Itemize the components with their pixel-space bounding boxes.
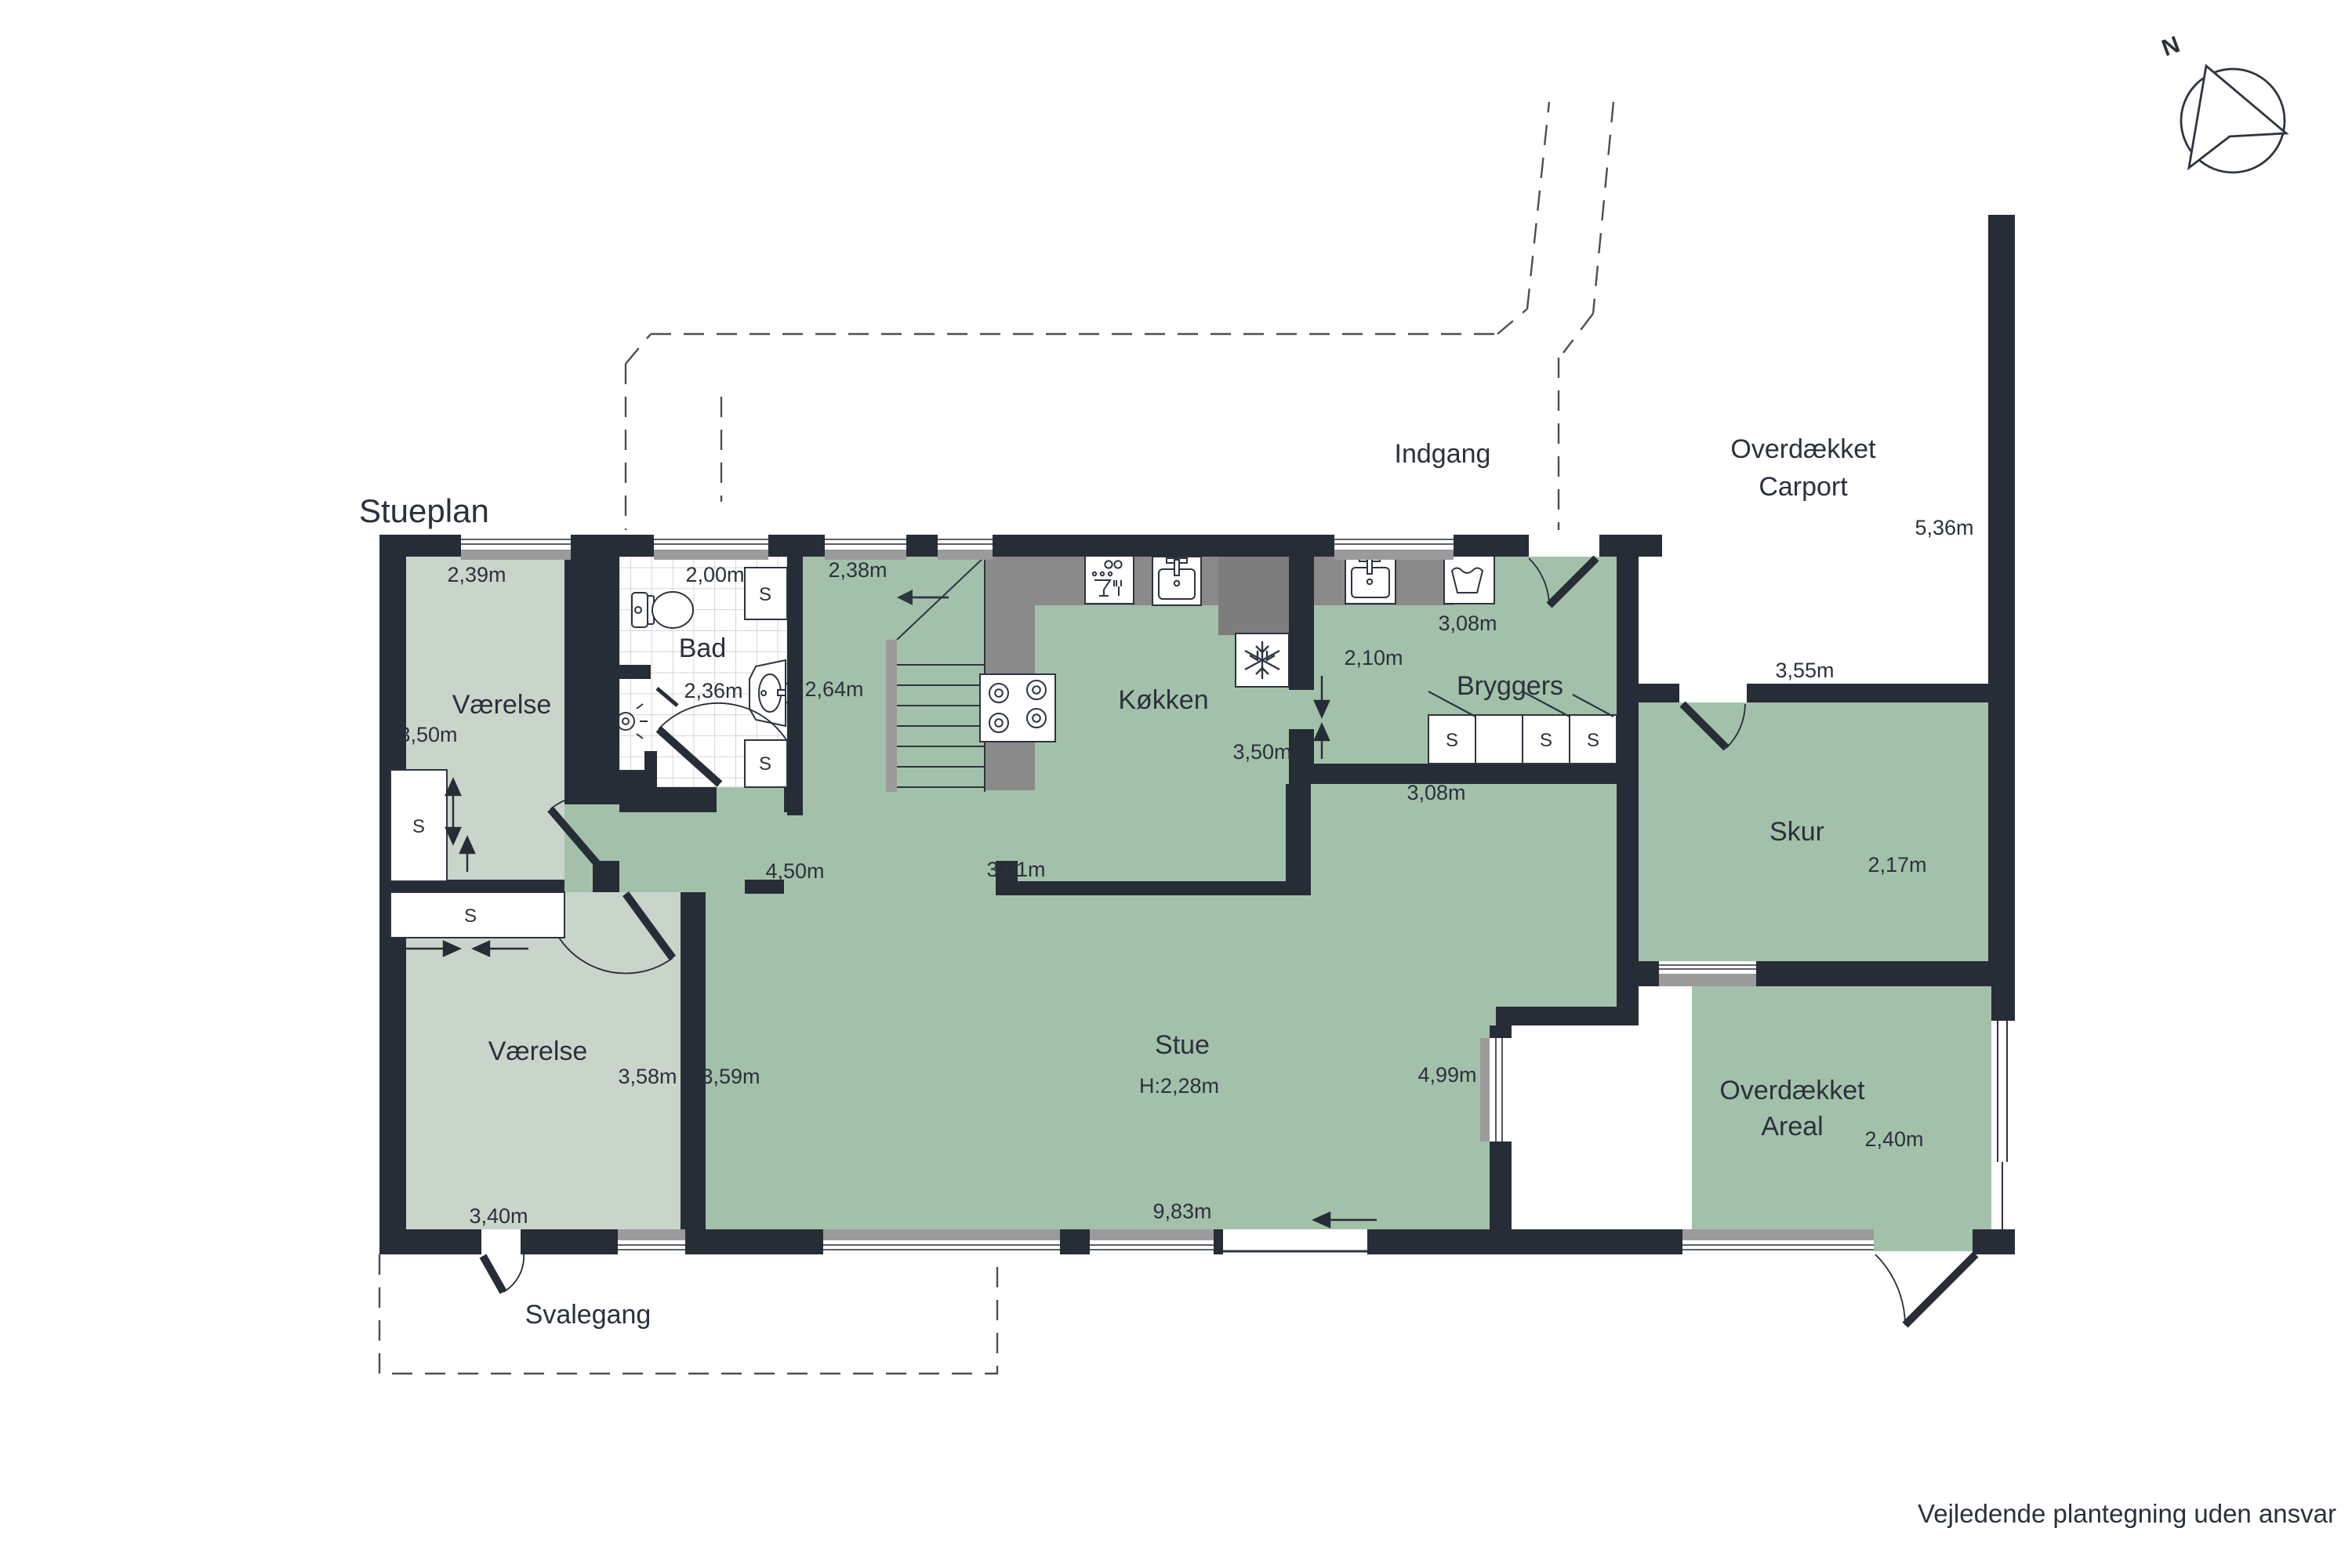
- areal-right-frame: [1998, 1021, 2007, 1229]
- skur-window: [1659, 961, 1756, 986]
- dim-vaerelse1-depth: 3,50m: [398, 723, 457, 746]
- svalegang-outline: [379, 1254, 997, 1374]
- closet-s-label: S: [1587, 730, 1599, 751]
- kitchen-sink-icon: [1152, 557, 1201, 605]
- dim-skur-depth: 2,17m: [1867, 853, 1926, 877]
- dim-stue-width: 9,83m: [1152, 1200, 1211, 1223]
- label-svalegang: Svalegang: [525, 1300, 652, 1330]
- room-label-vaerelse1: Værelse: [452, 690, 552, 720]
- toilet-icon: [632, 592, 693, 628]
- dim-bryggers-bottom: 3,08m: [1406, 781, 1465, 804]
- dim-hall-width: 2,38m: [828, 558, 887, 582]
- entrance-path-left: [1527, 102, 1549, 309]
- door-leaf-vaerelse2-exit: [483, 1256, 503, 1292]
- washing-machine-icon: [1444, 554, 1494, 604]
- dim-hall-depth: 2,64m: [804, 677, 863, 701]
- room-label-areal-line2: Areal: [1761, 1112, 1823, 1142]
- room-label-koekken: Køkken: [1118, 685, 1208, 715]
- label-carport-line1: Overdækket: [1730, 434, 1876, 464]
- floor-plan-svg: S S S S S S S Stu: [0, 0, 2352, 1568]
- dim-carport-depth: 5,36m: [1915, 516, 1973, 539]
- dim-vaerelse2-left: 3,58m: [618, 1065, 677, 1088]
- label-carport-line2: Carport: [1759, 472, 1848, 502]
- dim-vaerelse2-right: 3,59m: [701, 1065, 760, 1088]
- floor-plan-page: S S S S S S S Stu: [0, 0, 2352, 1568]
- room-label-skur: Skur: [1769, 817, 1824, 847]
- dim-stue-depth: 4,99m: [1417, 1063, 1476, 1087]
- closet-s-label: S: [759, 753, 771, 775]
- stove-icon: [980, 674, 1055, 742]
- room-label-areal-line1: Overdækket: [1719, 1076, 1865, 1105]
- room-label-vaerelse2: Værelse: [488, 1036, 588, 1066]
- dim-areal-width: 2,40m: [1864, 1127, 1923, 1151]
- freezer-icon: [1236, 633, 1289, 687]
- closet-s-label: S: [1540, 730, 1552, 751]
- closet-s-label: S: [464, 906, 477, 927]
- dim-bad-depth: 2,36m: [684, 679, 742, 702]
- dim-skur-width: 3,55m: [1775, 659, 1834, 682]
- utility-sink-icon: [1345, 555, 1396, 604]
- closet-s-label: S: [1446, 730, 1458, 751]
- compass-north-label: N: [2158, 31, 2183, 61]
- floor-fills: [406, 557, 1991, 1251]
- dim-koekken-depth: 3,50m: [1232, 740, 1291, 764]
- closet-s-label: S: [412, 816, 425, 837]
- label-indgang: Indgang: [1395, 439, 1491, 469]
- dim-gang: 4,50m: [765, 859, 824, 883]
- closet-s-label: S: [759, 584, 771, 605]
- page-title: Stueplan: [359, 492, 489, 529]
- dim-vaerelse1-width: 2,39m: [447, 563, 506, 586]
- dim-bryggers-top: 3,08m: [1438, 612, 1497, 635]
- entrance-path-right: [1593, 102, 1613, 314]
- room-label-bad: Bad: [679, 633, 727, 663]
- compass-needle-icon: [2189, 66, 2286, 168]
- dim-bryggers-depth: 2,10m: [1344, 646, 1403, 670]
- dim-stue-ceiling: H:2,28m: [1139, 1074, 1219, 1098]
- room-label-bryggers: Bryggers: [1457, 671, 1563, 701]
- dim-bad-width: 2,00m: [685, 563, 744, 586]
- compass: N: [2158, 31, 2286, 172]
- room-label-stue: Stue: [1155, 1030, 1210, 1060]
- disclaimer-text: Vejledende plantegning uden ansvar: [1918, 1499, 2336, 1528]
- door-leaf-areal: [1905, 1254, 1976, 1325]
- dim-vaerelse2-bottom: 3,40m: [469, 1204, 528, 1228]
- bath-sink-icon: [750, 660, 792, 726]
- dim-stub-wall: 3,01m: [986, 858, 1045, 881]
- dishwasher-icon: [1085, 555, 1134, 604]
- areal-window: [1682, 1229, 1874, 1254]
- stue-side-window: [1480, 1038, 1512, 1142]
